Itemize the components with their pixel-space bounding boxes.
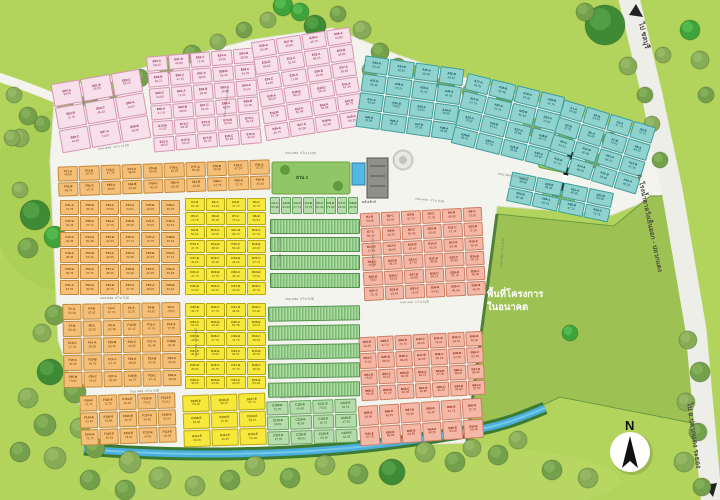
site-master-plan-map: ไป ชลบุรี ถ. โรงน้ำตาลวังเย็นออก - ปลวกแ… [0, 0, 720, 500]
townhouse-strip [270, 219, 360, 234]
plot-B61-B: B61-B45.86 [414, 382, 432, 398]
tree-highlight [222, 472, 233, 483]
plot-F21-C: F21-C47.76 [103, 354, 122, 370]
plot-B58-C: B58-C56.18 [361, 385, 379, 401]
plot-D113-E: D113-E50.48 [239, 428, 267, 446]
plot-F102-E: F102-E73.02 [137, 393, 156, 410]
plot-D25-B: D25-B73.02 [185, 282, 205, 295]
plot-F41-C: F41-C73.02 [141, 216, 160, 231]
tree-highlight [317, 457, 328, 468]
plot-F56-C: F56-C47.76 [80, 264, 99, 279]
tree-highlight [12, 444, 23, 455]
zone-block-F-f-bot: F99-E47.74F100-E72.75F101-E45.43F102-E73… [79, 392, 177, 445]
tree-highlight [20, 390, 31, 401]
plot-D31-B: D31-B48.06 [226, 303, 246, 317]
plot-A39-B: A39-B72.75 [411, 80, 437, 100]
plot-B32-B: B32-B45.43 [384, 285, 404, 300]
plot-B64-C: B64-C52.50 [468, 379, 486, 395]
tree-highlight [657, 48, 666, 57]
tree-highlight [262, 13, 271, 22]
plot-B38-C: B38-C47.74 [376, 335, 394, 351]
plot-F59-C: F59-C40.25 [141, 264, 160, 279]
tree-highlight [682, 22, 693, 33]
plot-E59-C: E59-C40.25 [234, 64, 256, 81]
tree-highlight [465, 440, 475, 450]
tree-highlight [544, 462, 555, 473]
plot-D10-C: D10-C40.06 [206, 226, 226, 239]
townhouse-strip [268, 305, 360, 322]
plot-B29-B: B29-B47.76 [445, 267, 465, 282]
compass-n-label: N [625, 418, 634, 433]
plot-D6-B: D6-B45.43 [206, 212, 226, 225]
plot-E73-B: E73-B60.23 [217, 114, 239, 131]
plot-F32-B: F32-B45.43 [80, 200, 99, 215]
plot-D1-B: D1-B50.48 [185, 198, 205, 211]
plot-D43-C: D43-C54.51 [226, 347, 246, 361]
plot-D8-B: D8-B54.51 [247, 212, 267, 225]
plot-E74-C: E74-C56.18 [239, 112, 261, 129]
plot-D5-C: D5-C72.75 [185, 212, 205, 225]
plot-B91-E: B91-E47.76 [359, 425, 380, 446]
plot-F3-C: F3-C47.74 [102, 303, 121, 319]
plot-B22-B: B22-B48.06 [424, 253, 444, 268]
plot-B39-B: B39-B72.75 [394, 335, 412, 351]
plot-D11-B: D11-B46.75 [226, 226, 246, 239]
plot-C3-C: C3-C47.74 [292, 197, 302, 214]
plot-B90-E: B90-E72.75 [462, 398, 483, 419]
tree-highlight [693, 52, 703, 62]
plot-F65-A: F65-A48.06 [141, 280, 160, 295]
plot-F20-B: F20-B46.75 [83, 354, 102, 370]
plot-E61-A: E61-A71.02 [171, 85, 193, 102]
plot-B16-C: B16-C40.25 [423, 239, 443, 254]
tree-highlight [639, 88, 648, 97]
plot-F37-B: F37-B43.43 [60, 216, 79, 231]
plot-E71-C: E71-C39.06 [173, 118, 195, 135]
plot-F35-B: F35-B40.06 [141, 200, 160, 215]
plot-B18-C: B18-C43.43 [464, 236, 484, 251]
tree-highlight [564, 326, 573, 335]
plot-D51-C: D51-C40.25 [226, 376, 246, 390]
plot-F83-A: F83-A48.06 [101, 180, 122, 195]
plot-F9-A: F9-A50.48 [102, 320, 121, 336]
plot-B14-C: B14-C48.06 [382, 241, 402, 256]
zone-block-E-e-b: E26-A62.46E27-B45.86E28-C45.75E29-A64.92… [251, 27, 365, 141]
plot-F50-B: F50-B63.40 [80, 248, 99, 263]
plot-D26-C: D26-C54.51 [206, 282, 226, 295]
plot-B40-C: B40-C45.43 [412, 334, 430, 350]
tree-highlight [700, 88, 709, 97]
tree-highlight [306, 17, 318, 29]
plot-D29-B: D29-B46.75 [185, 303, 205, 317]
plot-B56-C: B56-C48.06 [449, 364, 467, 380]
plot-F101-E: F101-E45.43 [118, 394, 137, 411]
plot-D12-C: D12-C47.76 [247, 226, 267, 239]
tree-highlight [511, 432, 521, 442]
townhouse-strip [270, 255, 360, 270]
plot-F106-E: F106-E45.75 [119, 411, 138, 428]
plot-B28-C: B28-C46.75 [424, 268, 444, 283]
plot-F88-C: F88-C47.74 [207, 176, 228, 191]
plot-E60-C: E60-C44.80 [149, 87, 171, 104]
plot-A38-A: A38-A47.74 [386, 77, 412, 97]
tree-highlight [187, 478, 198, 489]
plot-F29-C: F29-C47.76 [143, 370, 162, 386]
plot-B93-E: B93-E63.40 [401, 423, 422, 444]
plot-F45-B: F45-B43.43 [100, 232, 119, 247]
plot-D49-C: D49-C48.06 [185, 376, 205, 390]
plot-D46-C: D46-C46.75 [206, 361, 226, 375]
plot-D110-E: D110-E58.15 [239, 410, 267, 428]
plot-F39-A: F39-A72.75 [100, 216, 119, 231]
tree-highlight [695, 479, 705, 489]
plot-B62-C: B62-C45.75 [432, 381, 450, 397]
zone-block-B-b-mid: B37-B43.43B38-C47.74B39-B72.75B40-C45.43… [358, 331, 485, 401]
plot-F108-E: F108-E52.50 [157, 409, 176, 426]
plot-D105-E: D105-E50.48 [182, 395, 210, 413]
plot-B63-B: B63-B64.92 [450, 380, 468, 396]
tree-highlight [117, 482, 128, 493]
plot-A42-B: A42-B73.02 [383, 95, 409, 115]
zone-block-C-c-top: C1-C50.48C2-B43.43C3-C47.74C4-B72.75C5-C… [270, 197, 358, 214]
plot-D44-B: D44-B40.06 [247, 347, 267, 361]
plot-B20-B: B20-B46.75 [383, 256, 403, 271]
plot-E77-B: E77-B40.25 [196, 132, 218, 149]
plot-F8-C: F8-C40.25 [82, 320, 101, 336]
tree-highlight [212, 35, 221, 44]
plot-E78-C: E78-C50.48 [218, 130, 240, 147]
plot-E51-B: E51-B44.80 [168, 53, 190, 70]
plot-F30-A: F30-A48.06 [163, 370, 182, 386]
plot-A40-A: A40-A45.43 [436, 84, 462, 104]
plot-B85-E: B85-E63.40 [358, 405, 379, 426]
plot-F16-C: F16-C40.25 [122, 337, 141, 353]
plot-B25-B: B25-B73.02 [363, 271, 383, 286]
plot-B2-C: B2-C43.43 [380, 211, 400, 226]
plot-F78-B: F78-B43.43 [207, 161, 228, 176]
park-tree [333, 181, 343, 191]
tree-highlight [35, 325, 45, 335]
tree-highlight [681, 332, 691, 342]
plot-D19-B: D19-B43.43 [226, 254, 246, 267]
plot-F100-E: F100-E72.75 [99, 394, 118, 411]
plot-F11-C: F11-C47.74 [142, 319, 161, 335]
plot-F13-C: F13-C47.76 [63, 338, 82, 354]
plot-C115-E: C115-E46.75 [312, 414, 334, 429]
plot-D107-E: D107-E47.74 [238, 393, 266, 411]
plot-A35-A: A35-A50.48 [413, 62, 439, 82]
plot-F4-A: F4-A72.75 [122, 303, 141, 319]
plot-F28-B: F28-B46.75 [123, 371, 142, 387]
plot-E58-B: E58-B63.40 [213, 65, 235, 82]
plot-C7-C: C7-C54.51 [337, 197, 347, 214]
tree-highlight [676, 454, 687, 465]
tree-highlight [332, 7, 341, 16]
plot-E62-B: E62-B39.06 [192, 83, 214, 100]
plot-B6-C: B6-C73.02 [462, 207, 482, 222]
tree-highlight [121, 453, 133, 465]
plot-B41-B: B41-B73.02 [430, 333, 448, 349]
plot-F52-A: F52-A50.48 [120, 248, 139, 263]
tree-highlight [490, 447, 501, 458]
plot-C2-B: C2-B43.43 [281, 197, 291, 214]
plot-B17-B: B17-B50.48 [443, 238, 463, 253]
swimming-pool [352, 163, 365, 185]
plot-F46-C: F46-C47.74 [120, 232, 139, 247]
plot-B47-B: B47-B60.23 [413, 350, 431, 366]
plot-F23-B: F23-B63.40 [142, 353, 161, 369]
road-width-label: ถนน คสล. กว้าง 9.00 [280, 394, 309, 400]
zone-block-D-d-top: D1-B50.48D2-C43.43D3-B47.74D4-C72.75D5-C… [185, 198, 266, 295]
plot-B36-B: B36-B46.75 [466, 281, 486, 296]
plot-F82-C: F82-C47.76 [79, 181, 100, 196]
plot-F14-A: F14-A48.06 [83, 337, 102, 353]
plot-F2-B: F2-B43.43 [82, 303, 101, 319]
plot-D4-C: D4-C72.75 [247, 198, 267, 211]
plot-C119-E: C119-E63.40 [313, 429, 335, 444]
plot-A36-B: A36-B43.43 [438, 66, 464, 86]
plot-D3-B: D3-B47.74 [226, 198, 246, 211]
plot-E81-B: E81-B39.28 [80, 74, 113, 101]
plot-B15-B: B15-B63.40 [402, 240, 422, 255]
plot-D35-C: D35-C50.48 [226, 318, 246, 332]
plot-B24-B: B24-B40.25 [464, 251, 484, 266]
plot-D36-B: D36-B43.43 [247, 318, 267, 332]
zone-block-A-a-1: A33-A63.40A34-B40.25A35-A50.48A36-B43.43… [355, 55, 464, 140]
plot-F49-A: F49-A48.06 [60, 248, 79, 263]
plot-B96-E: B96-E43.43 [463, 418, 484, 439]
plot-A33-A: A33-A63.40 [363, 55, 389, 75]
tree-highlight [46, 449, 58, 461]
plot-D109-E: D109-E52.50 [211, 411, 239, 429]
plot-F76-C: F76-C40.25 [164, 162, 185, 177]
plot-E64-A: E64-A60.23 [236, 80, 258, 97]
plot-F109-E: F109-E72.75 [80, 429, 99, 446]
plot-D38-C: D38-C47.74 [206, 332, 226, 346]
plot-F40-B: F40-B45.43 [120, 216, 139, 231]
plot-F38-C: F38-C47.74 [80, 216, 99, 231]
plot-A34-B: A34-B40.25 [388, 59, 414, 79]
plot-A46-A: A46-A46.75 [380, 113, 406, 133]
plot-E57-A: E57-A48.06 [191, 67, 213, 84]
tree-highlight [46, 228, 58, 240]
future-area-label-line2: ในอนาคต [487, 300, 528, 315]
plot-E80-A: E80-A39.06 [51, 79, 84, 106]
plot-F34-A: F34-A54.51 [120, 200, 139, 215]
plot-B54-C: B54-C46.75 [414, 366, 432, 382]
plot-B10-B: B10-B43.43 [422, 224, 442, 239]
plot-F42-A: F42-A54.51 [161, 216, 180, 231]
plot-D39-B: D39-B72.75 [226, 332, 246, 346]
plot-E65-A: E65-A47.76 [150, 103, 172, 120]
plot-B51-B: B51-B73.02 [360, 369, 378, 385]
plot-D45-B: D45-B40.06 [185, 361, 205, 375]
plot-D30-C: D30-C47.76 [206, 303, 226, 317]
plot-E67-C: E67-C63.40 [194, 100, 216, 117]
plot-B53-B: B53-B40.06 [396, 367, 414, 383]
townhouse-strip [268, 343, 360, 360]
plot-B48-C: B48-C56.18 [431, 349, 449, 365]
plot-F31-A: F31-A72.75 [60, 200, 79, 215]
plot-D24-B: D24-B73.02 [247, 268, 267, 281]
plot-A45-B: A45-B40.06 [355, 110, 381, 130]
plot-F19-A: F19-A40.06 [63, 355, 82, 371]
plot-F73-C: F73-C47.76 [100, 165, 121, 180]
plot-B45-B: B45-B39.06 [377, 352, 395, 368]
plot-B27-B: B27-B40.06 [404, 269, 424, 284]
plot-B30-C: B30-C48.06 [465, 266, 485, 281]
plot-F105-E: F105-E45.86 [99, 411, 118, 428]
plot-F79-C: F79-C47.74 [228, 160, 249, 175]
plot-B46-C: B46-C39.28 [395, 351, 413, 367]
plot-C1-C: C1-C50.48 [270, 197, 280, 214]
plot-B33-C: B33-C73.02 [405, 284, 425, 299]
plot-B37-B: B37-B43.43 [358, 336, 376, 352]
plot-F6-C: F6-C73.02 [161, 302, 180, 318]
plot-F1-A: F1-A50.48 [62, 304, 81, 320]
plot-F48-B: F48-B45.43 [161, 232, 180, 247]
plot-F87-B: F87-B43.43 [186, 177, 207, 192]
plot-B92-E: B92-E48.06 [380, 424, 401, 445]
zone-block-C-c-bot: C109-E72.75C110-E45.43C111-E73.02C112-E5… [266, 398, 357, 445]
plot-F110-E: F110-E45.43 [100, 428, 119, 445]
plot-B35-C: B35-C40.06 [446, 282, 466, 297]
plot-B3-B: B3-B47.74 [401, 210, 421, 225]
plot-F10-B: F10-B43.43 [122, 320, 141, 336]
plot-F5-B: F5-B45.43 [142, 302, 161, 318]
zone-block-F-f-mid: F31-A72.75F32-B45.43F33-C73.02F34-A54.51… [60, 200, 180, 295]
plot-B26-C: B26-C54.51 [383, 270, 403, 285]
road-width-label: ถนน คสล. กว้าง 9.00 [400, 300, 429, 306]
plot-E70-B: E70-B71.02 [152, 119, 174, 136]
plot-F33-C: F33-C73.02 [100, 200, 119, 215]
plot-D18-C: D18-C50.48 [206, 254, 226, 267]
plot-D108-E: D108-E64.92 [183, 412, 211, 430]
park-1-label: สวน 1 [296, 174, 308, 181]
plot-F27-A: F27-A40.06 [103, 371, 122, 387]
plot-B44-C: B44-C71.02 [359, 353, 377, 369]
plot-B42-C: B42-C54.51 [448, 332, 466, 348]
plot-D112-E: D112-E40.25 [211, 429, 239, 447]
plot-D40-C: D40-C45.43 [247, 332, 267, 346]
plot-C118-E: C118-E48.06 [290, 430, 312, 445]
tree-highlight [20, 240, 31, 251]
plot-B4-C: B4-C72.75 [421, 209, 441, 224]
plot-D50-B: D50-B63.40 [206, 376, 226, 390]
plot-B1-B: B1-B50.48 [360, 212, 380, 227]
plot-D7-C: D7-C73.02 [226, 212, 246, 225]
road-width-label: ถนน คสล. กว้าง 9.00 [194, 328, 199, 357]
plot-F72-B: F72-B46.75 [79, 165, 100, 180]
plot-F62-A: F62-A40.06 [80, 280, 99, 295]
plot-F58-B: F58-B63.40 [120, 264, 139, 279]
plot-B8-B: B8-B40.25 [381, 226, 401, 241]
plot-F85-C: F85-C40.25 [143, 179, 164, 194]
plot-B50-C: B50-C62.46 [466, 347, 484, 363]
plot-D15-C: D15-C63.40 [226, 240, 246, 253]
tree-highlight [692, 364, 703, 375]
roundabout-island [399, 156, 407, 164]
road-width-label: ถนน คสล. กว้าง 9.00 [100, 296, 129, 301]
plot-C120-E: C120-E40.25 [336, 428, 358, 443]
plot-F107-E: F107-E64.92 [138, 410, 157, 427]
plot-F22-A: F22-A48.06 [123, 354, 142, 370]
plot-F7-B: F7-B63.40 [63, 321, 82, 337]
plot-B52-C: B52-C54.51 [378, 368, 396, 384]
plot-F84-B: F84-B63.40 [122, 179, 143, 194]
tree-highlight [47, 307, 58, 318]
plot-F90-B: F90-B45.43 [250, 175, 271, 190]
plot-D13-C: D13-C47.76 [185, 240, 205, 253]
plot-B89-E: B89-E47.74 [441, 399, 462, 420]
plot-C113-E: C113-E54.51 [267, 416, 289, 431]
clubhouse-building [367, 158, 388, 198]
plot-B21-C: B21-C47.76 [403, 255, 423, 270]
plot-F99-E: F99-E47.74 [79, 395, 98, 412]
plot-D47-B: D47-B47.76 [226, 361, 246, 375]
plot-D2-C: D2-C43.43 [206, 198, 226, 211]
plot-A47-B: A47-B47.76 [405, 117, 431, 137]
plot-B55-B: B55-B47.76 [431, 365, 449, 381]
plot-F60-A: F60-A50.48 [161, 264, 180, 279]
plot-B59-B: B59-B67.29 [379, 384, 397, 400]
plot-F26-C: F26-C54.51 [83, 371, 102, 387]
plot-C109-E: C109-E72.75 [266, 401, 288, 416]
plot-F12-A: F12-A72.75 [162, 319, 181, 335]
plot-B57-B: B57-B63.40 [467, 363, 485, 379]
plot-D32-C: D32-C63.40 [247, 303, 267, 317]
plot-B86-E: B86-E40.25 [379, 404, 400, 425]
plot-B12-B: B12-B72.75 [463, 222, 483, 237]
plot-B49-B: B49-B67.29 [448, 348, 466, 364]
tree-highlight [580, 470, 591, 481]
plot-F43-C: F43-C40.25 [60, 232, 79, 247]
plot-F74-A: F74-A48.06 [121, 164, 142, 179]
plot-F44-A: F44-A50.48 [80, 232, 99, 247]
plot-A41-A: A41-A45.43 [358, 92, 384, 112]
road-width-label: ถนน คสล. กว้าง 12.00 [285, 151, 316, 157]
plot-B5-B: B5-B45.43 [442, 208, 462, 223]
plot-E72-A: E72-A39.28 [195, 116, 217, 133]
plot-F86-A: F86-A50.48 [165, 178, 186, 193]
plot-E69-B: E69-B50.48 [237, 96, 259, 113]
plot-D20-C: D20-C47.74 [247, 254, 267, 267]
park-tree [280, 165, 290, 175]
tree-highlight [6, 131, 15, 140]
plot-F15-B: F15-B63.40 [103, 337, 122, 353]
plot-C5-C: C5-C45.43 [315, 197, 325, 214]
plot-F24-C: F24-C40.25 [162, 353, 181, 369]
plot-E82-C: E82-C60.23 [110, 69, 143, 96]
plot-E55-B: E55-B46.75 [147, 71, 169, 88]
tree-highlight [621, 58, 631, 68]
plot-A43-A: A43-A54.51 [408, 99, 434, 119]
plot-D52-B: D52-B50.48 [247, 376, 267, 390]
tree-highlight [8, 88, 17, 97]
tree-highlight [247, 458, 258, 469]
plot-F53-B: F53-B43.43 [141, 248, 160, 263]
plot-E76-A: E76-A63.40 [175, 134, 197, 151]
plot-B95-E: B95-E50.48 [442, 420, 463, 441]
tree-highlight [417, 444, 428, 455]
plot-F61-C: F61-C54.51 [60, 280, 79, 295]
tree-highlight [355, 22, 365, 32]
plot-D14-B: D14-B48.06 [206, 240, 226, 253]
plot-A37-B: A37-B43.43 [361, 73, 387, 93]
plot-D27-B: D27-B40.06 [226, 282, 246, 295]
plot-C111-E: C111-E73.02 [312, 399, 334, 414]
plot-F63-B: F63-B46.75 [100, 280, 119, 295]
